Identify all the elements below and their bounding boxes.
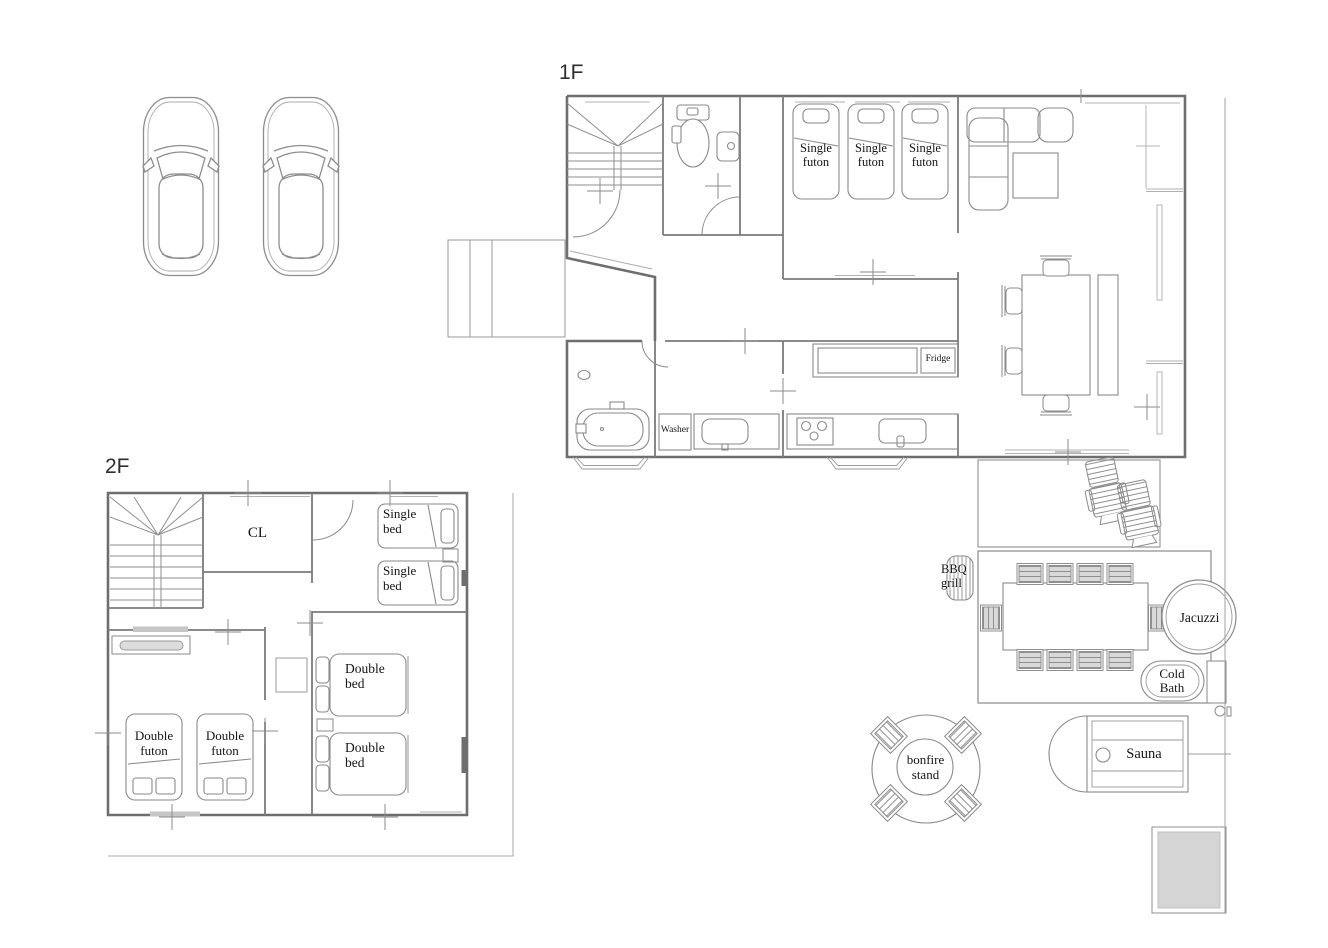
floor-plan-drawing: [0, 0, 1328, 948]
jacuzzi-label: Jacuzzi: [1171, 610, 1228, 625]
washer-label: Washer: [657, 425, 693, 436]
coffee-table: [1013, 153, 1058, 198]
single-bed-label: Single bed: [383, 507, 435, 536]
patio-chair: [1047, 650, 1073, 671]
concrete-slab: [1152, 827, 1226, 913]
stairs-2f: [110, 497, 203, 608]
dining-chair: [1002, 285, 1022, 317]
bbq-grill-label: BBQ grill: [941, 562, 981, 590]
patio-chair: [1017, 650, 1043, 671]
parking-cars: [143, 98, 339, 276]
car-icon: [263, 98, 339, 276]
lounge-chair: [1111, 478, 1164, 549]
double-futon-label: Double futon: [126, 729, 182, 758]
bathtub: [577, 409, 649, 450]
living-dining: [967, 108, 1118, 395]
patio-chair: [1077, 564, 1103, 585]
patio-chair: [1107, 564, 1133, 585]
double-bed-label: Double bed: [345, 661, 407, 691]
dining-table: [1022, 275, 1090, 395]
dining-chair: [1002, 345, 1022, 377]
closet-label: CL: [230, 525, 285, 542]
patio-chair: [981, 605, 1002, 631]
floor-1f-title: 1F: [559, 62, 584, 83]
single-futon-label: Single futon: [902, 141, 948, 169]
single-futon-label: Single futon: [793, 141, 839, 169]
sofa-chaise: [1038, 108, 1073, 142]
vanity-sink: [702, 419, 748, 444]
sauna-label: Sauna: [1118, 746, 1170, 762]
desk: [112, 636, 190, 654]
single-futon-label: Single futon: [848, 141, 894, 169]
patio-chair: [1017, 564, 1043, 585]
floor-2f-title: 2F: [105, 456, 130, 477]
double-bed-label: Double bed: [345, 740, 407, 770]
patio-step: [1207, 661, 1226, 703]
patio-chair: [1047, 564, 1073, 585]
double-futon-label: Double futon: [197, 729, 253, 758]
stove: [797, 418, 833, 445]
entrance-porch: [448, 240, 565, 337]
sofa-arm: [969, 118, 1008, 210]
nightstand: [317, 719, 333, 731]
car-icon: [143, 98, 219, 276]
dining-chair: [1040, 395, 1072, 415]
outdoor-faucet: [1215, 706, 1225, 716]
dining-chair: [1040, 256, 1072, 276]
kitchen-counter: [787, 414, 958, 449]
bonfire-stand-label: bonfire stand: [898, 753, 953, 782]
stairs-1f: [567, 103, 663, 190]
patio-chair: [1107, 650, 1133, 671]
cold-bath-label: Cold Bath: [1150, 667, 1194, 694]
kitchen-sink: [879, 419, 926, 443]
fridge-label: Fridge: [921, 354, 955, 365]
floor-plan-page: 1F 2F Single futon Single futon Single f…: [0, 0, 1328, 948]
outdoor-table: [1003, 583, 1148, 650]
nightstand: [443, 549, 458, 562]
toilet: [672, 105, 739, 167]
dining-bench: [1098, 275, 1118, 395]
patio-chair: [1077, 650, 1103, 671]
single-bed-label: Single bed: [383, 564, 435, 593]
closet-nook: [276, 658, 307, 692]
bathroom: [576, 371, 649, 451]
